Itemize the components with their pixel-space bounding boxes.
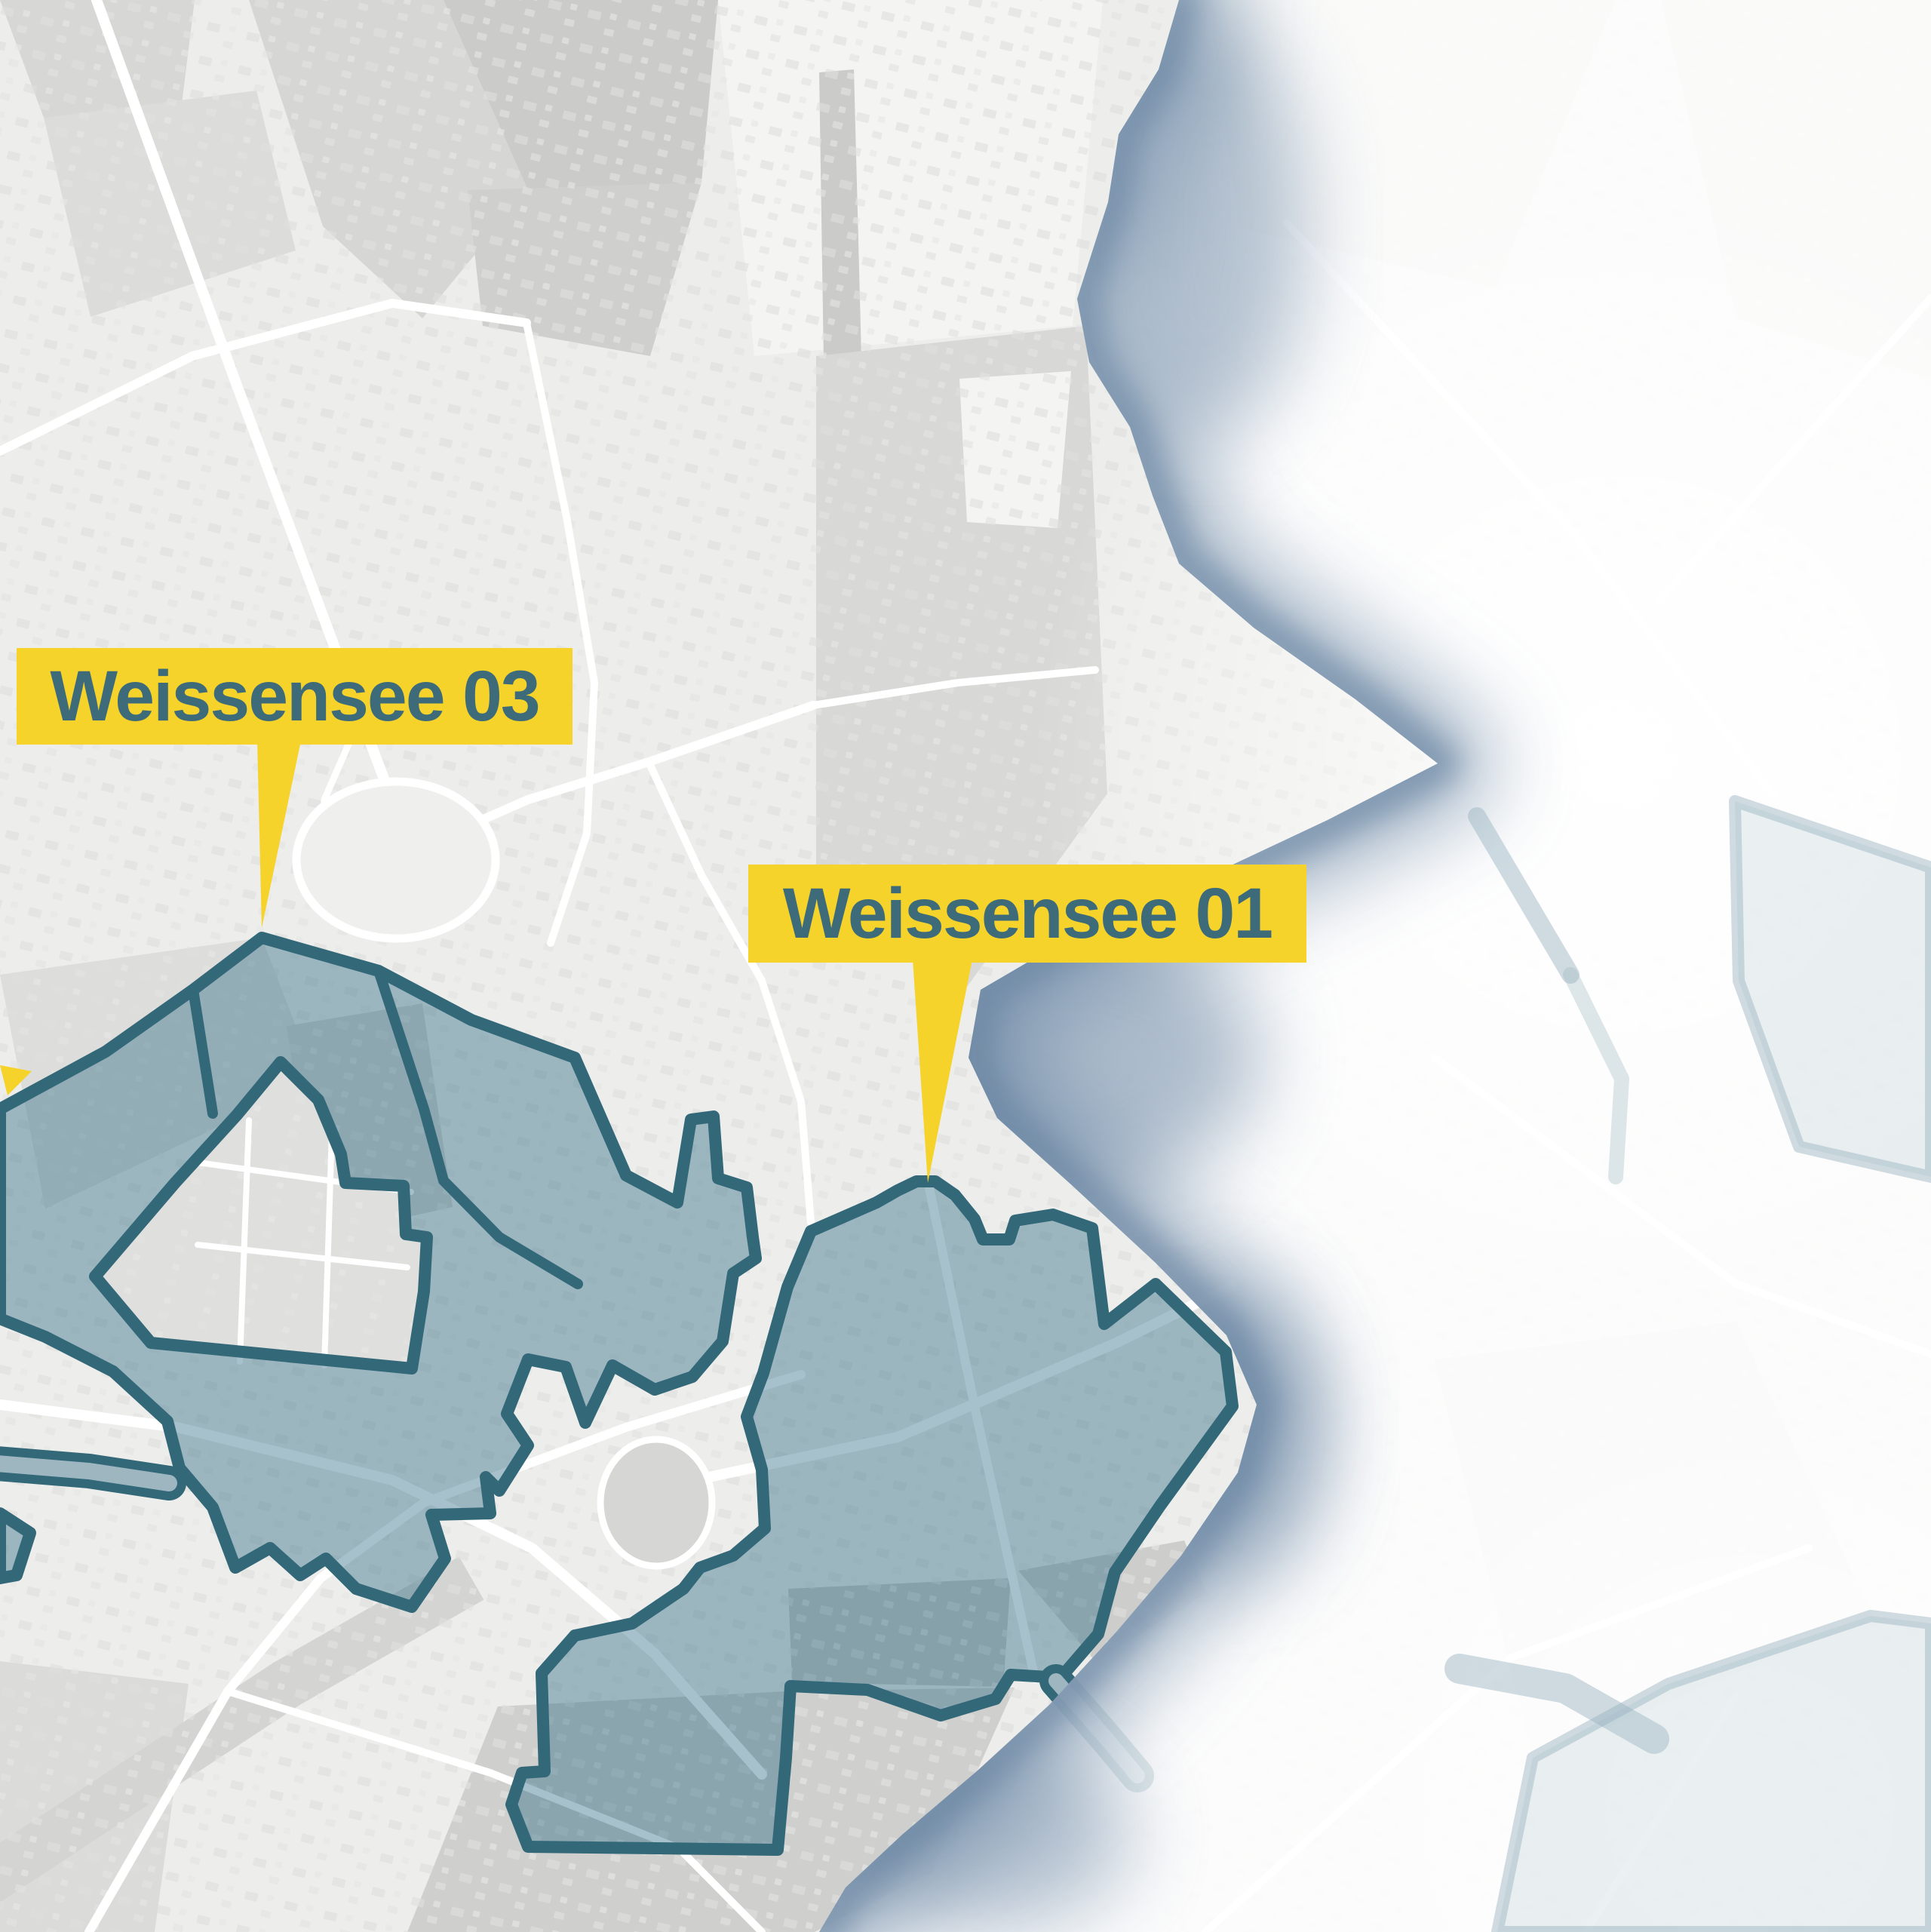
label-weissensee-03-text: Weissensee 03	[50, 661, 539, 733]
label-weissensee-01-text: Weissensee 01	[783, 878, 1272, 950]
map-sports-oval	[296, 782, 496, 938]
map-canvas	[0, 0, 1931, 1932]
label-weissensee-03: Weissensee 03	[17, 648, 573, 745]
map-screenshot: Weissensee 03 Weissensee 01	[0, 0, 1931, 1932]
map-pond	[600, 1439, 712, 1566]
label-weissensee-01: Weissensee 01	[748, 865, 1306, 963]
